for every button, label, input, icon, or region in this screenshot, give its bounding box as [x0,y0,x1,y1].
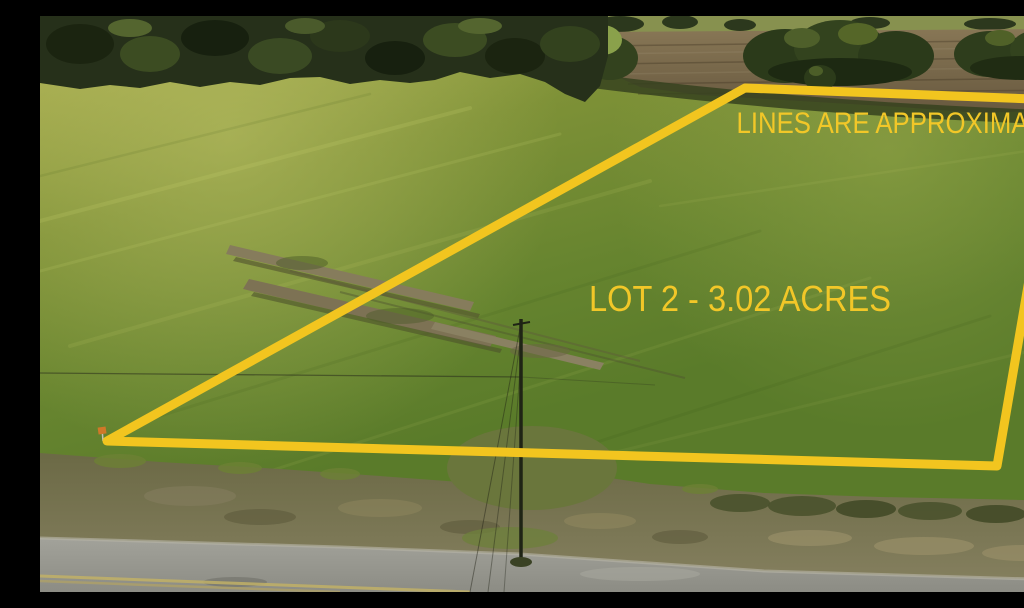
road-light-patch [580,567,700,581]
disclaimer-label: LINES ARE APPROXIMATE [737,107,1024,140]
pole-mound [447,426,617,510]
photo-canvas: LINES ARE APPROXIMATE LOT 2 - 3.02 ACRES [40,16,1024,592]
aerial-lot-photo: LINES ARE APPROXIMATE LOT 2 - 3.02 ACRES [40,16,1024,592]
lot-acreage-label: LOT 2 - 3.02 ACRES [589,278,891,319]
pole-base-brush [510,557,532,567]
